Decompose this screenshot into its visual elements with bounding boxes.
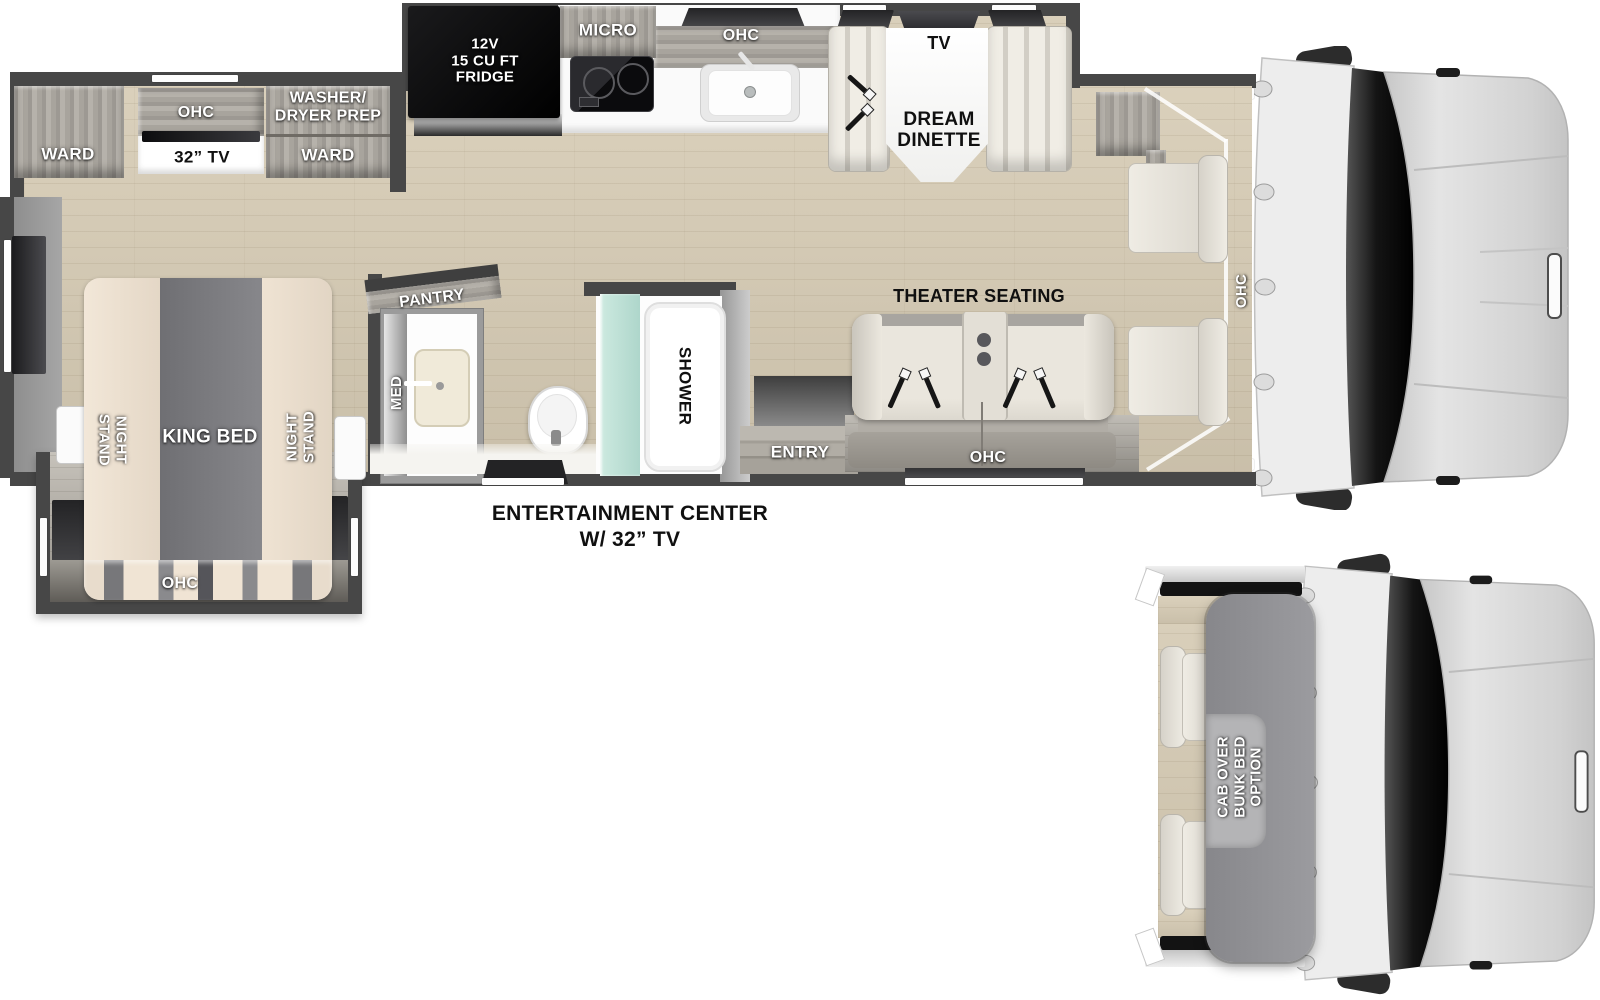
label-bedroom-ohc: OHC bbox=[178, 104, 214, 122]
cab-roof-band bbox=[1255, 58, 1355, 496]
bed-runner bbox=[160, 278, 262, 562]
label-cab-over-bunk-option: CAB OVER BUNK BED OPTION bbox=[1215, 736, 1265, 818]
label-line: STAND bbox=[96, 414, 113, 466]
chair-seat bbox=[1128, 163, 1206, 253]
hood-vent bbox=[1548, 254, 1561, 318]
label-ward-left: WARD bbox=[41, 146, 94, 165]
cab-cabinet bbox=[1096, 92, 1160, 156]
theater-armrest-left bbox=[852, 314, 882, 420]
wall-stub-bedroom-kitchen bbox=[390, 86, 406, 192]
chair-back bbox=[1198, 155, 1228, 263]
label-theater-seating: THEATER SEATING bbox=[893, 287, 1065, 307]
label-ward-right: WARD bbox=[301, 147, 354, 166]
bath-sink bbox=[414, 349, 470, 427]
option-chair-passenger bbox=[1160, 646, 1210, 746]
vanity-faucet bbox=[404, 381, 432, 386]
cooktop bbox=[570, 56, 654, 112]
label-night-stand-right: NIGHT STAND bbox=[285, 411, 318, 463]
entry-landing bbox=[754, 376, 854, 428]
label-line: DREAM bbox=[897, 110, 980, 131]
theater-console bbox=[962, 312, 1008, 420]
dinette-bench-left bbox=[828, 26, 890, 172]
truck-front-graphic bbox=[1248, 46, 1572, 510]
label-line: CAB OVER bbox=[1215, 736, 1232, 818]
label-line: 15 CU FT bbox=[451, 53, 518, 70]
window-strip bbox=[4, 240, 11, 372]
label-line: STAND bbox=[301, 411, 318, 463]
window-strip bbox=[152, 75, 238, 82]
bedroom-wall-tv bbox=[12, 236, 46, 374]
window-strip bbox=[905, 478, 1083, 485]
label-kitchen-ohc: OHC bbox=[723, 27, 759, 45]
window-strip bbox=[482, 478, 564, 485]
kitchen-sink bbox=[700, 64, 800, 122]
sink-drain bbox=[744, 86, 756, 98]
label-micro: MICRO bbox=[579, 22, 637, 41]
captain-chair-driver bbox=[1128, 318, 1228, 424]
label-bed-ohc: OHC bbox=[162, 575, 198, 593]
theater-armrest-right bbox=[1084, 314, 1114, 420]
label-line: DRYER PREP bbox=[275, 107, 381, 125]
sink-drain bbox=[436, 382, 444, 390]
label-washer-dryer: WASHER/ DRYER PREP bbox=[275, 89, 381, 124]
shower-glass bbox=[600, 294, 640, 476]
cupholder-icon bbox=[977, 352, 991, 366]
dinette-bench-right bbox=[986, 26, 1072, 172]
label-line: NIGHT bbox=[285, 411, 302, 463]
caption-line: ENTERTAINMENT CENTER bbox=[492, 501, 768, 527]
cupholder-icon bbox=[977, 333, 991, 347]
label-line: 12V bbox=[451, 36, 518, 53]
label-cab-ohc: OHC bbox=[1234, 274, 1251, 308]
burner-icon bbox=[617, 63, 649, 95]
caption-line: W/ 32” TV bbox=[492, 527, 768, 553]
option-wall-top bbox=[1145, 566, 1305, 583]
label-night-stand-left: NIGHT STAND bbox=[96, 414, 129, 466]
label-line: FRIDGE bbox=[451, 69, 518, 86]
label-line: NIGHT bbox=[112, 414, 129, 466]
label-line: WASHER/ bbox=[275, 89, 381, 107]
label-dream-dinette: DREAM DINETTE bbox=[897, 110, 980, 152]
burner-icon bbox=[583, 67, 615, 99]
label-line: DINETTE bbox=[897, 131, 980, 152]
window-strip bbox=[40, 518, 47, 576]
option-chair-driver bbox=[1160, 814, 1210, 914]
closet-divider bbox=[266, 134, 390, 137]
label-dinette-tv: TV bbox=[927, 34, 951, 54]
label-shower: SHOWER bbox=[675, 347, 694, 425]
night-stand-right bbox=[334, 416, 366, 480]
chair-seat bbox=[1128, 326, 1206, 416]
label-line: BUNK BED bbox=[1232, 736, 1249, 818]
label-bedroom-tv: 32” TV bbox=[174, 149, 230, 168]
caption-entertainment-center: ENTERTAINMENT CENTER W/ 32” TV bbox=[492, 501, 768, 554]
label-fridge: 12V 15 CU FT FRIDGE bbox=[451, 36, 518, 86]
chair-back bbox=[1198, 318, 1228, 426]
option-truck-graphic bbox=[1292, 550, 1598, 998]
captain-chair-passenger bbox=[1128, 155, 1228, 261]
label-line: OPTION bbox=[1248, 736, 1265, 818]
option-truck-front bbox=[1292, 550, 1598, 998]
label-theater-ohc: OHC bbox=[970, 449, 1006, 467]
cooktop-controls bbox=[579, 97, 599, 107]
bedroom-tv-32 bbox=[142, 131, 260, 142]
label-king-bed: KING BED bbox=[162, 428, 257, 449]
label-entry: ENTRY bbox=[771, 444, 830, 463]
rv-floorplan-canvas: { "colors": { "wall": "#474747", "floor_… bbox=[0, 0, 1600, 1000]
label-med: MED bbox=[389, 376, 406, 410]
window-strip bbox=[351, 518, 358, 576]
truck-front bbox=[1248, 46, 1572, 510]
bed-pillows bbox=[84, 560, 332, 600]
